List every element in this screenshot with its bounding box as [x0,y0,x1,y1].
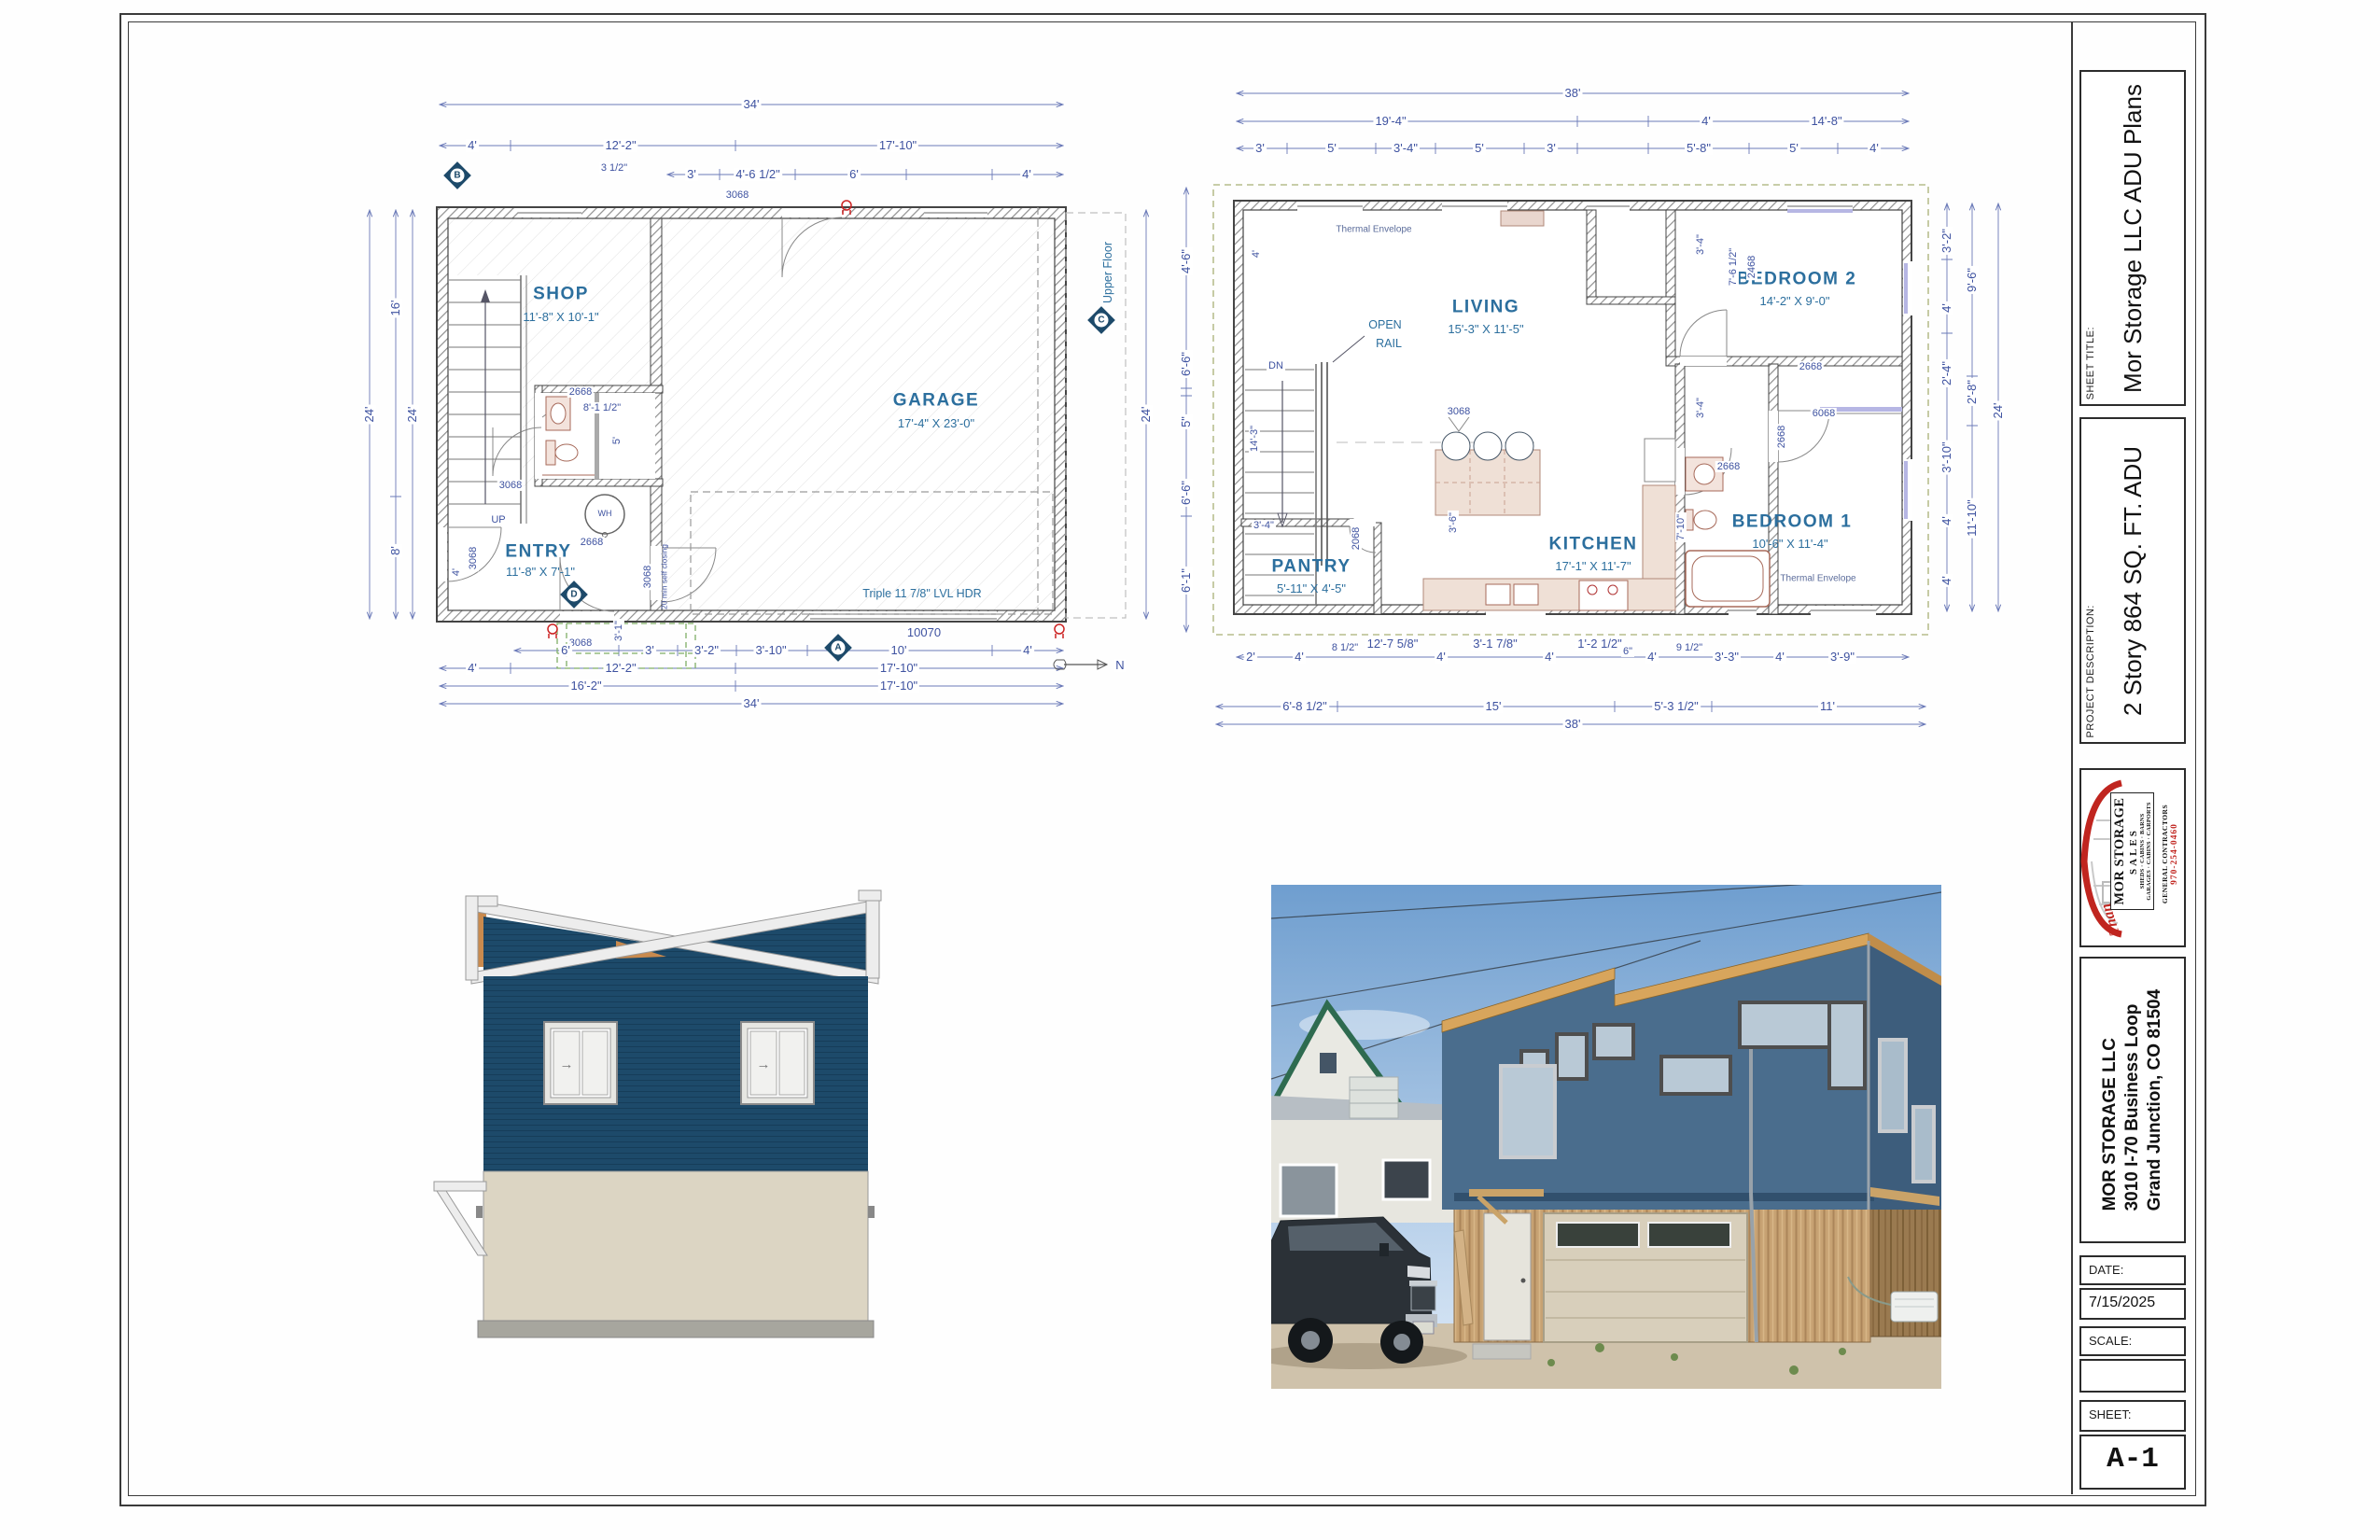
logo-tagline: GENERAL CONTRACTORS [2161,798,2169,910]
site-photo [1271,885,1941,1389]
mor-storage-logo: Than MOR STORAGE SALES SHEDS · CABINS · … [2082,774,2183,942]
scale-label: SCALE: [2081,1328,2184,1353]
plan-sheet: 34'4'12'-2"17'-10"3 1/2"3'4'-6 1/2"6'4'3… [0,0,2380,1540]
scale-label-box: SCALE: [2079,1326,2186,1356]
sheet-number: A-1 [2081,1436,2184,1476]
section-marker-letter: A [832,641,846,655]
elevation-lower-wall [483,1171,868,1321]
sheet-label: SHEET: [2081,1402,2184,1427]
title-block-divider [2071,21,2073,1494]
date-value-box: 7/15/2025 [2079,1288,2186,1320]
bath-closet-divider [595,393,599,479]
date-value: 7/15/2025 [2081,1290,2184,1316]
elevation-roof [466,890,881,984]
sheet-label-box: SHEET: [2079,1400,2186,1432]
project-description: 2 Story 864 SQ. FT. ADU [2119,446,2148,716]
logo-sales: SALES [2128,795,2139,907]
garage-front [1454,1189,1747,1359]
porch-outline [557,623,695,668]
company-address1: 3010 I-70 Business Loop [2121,989,2144,1211]
logo-products: SHEDS · CABINS · BARNS [2139,795,2146,907]
logo-sign: MOR STORAGE SALES SHEDS · CABINS · BARNS… [2110,792,2154,910]
section-marker-letter: B [451,169,465,183]
laundry-appliance [1501,211,1544,226]
sheet-title: Mor Storage LLC ADU Plans [2119,84,2148,393]
logo-box: Than MOR STORAGE SALES SHEDS · CABINS · … [2079,768,2186,947]
logo-phone: 970-254-0460 [2170,798,2179,910]
company-address2: Grand Junction, CO 81504 [2144,989,2166,1211]
company-address: MOR STORAGE LLC 3010 I-70 Business Loop … [2099,989,2165,1211]
second-floor-plan-drawing [1157,75,2016,747]
closet-rod [1820,407,1902,412]
north-arrow-icon [1054,660,1107,669]
logo-products: GARAGES · CABINS · CARPORTS [2146,795,2152,907]
sheet-number-box: A-1 [2079,1435,2186,1490]
first-floor-plan-drawing [355,75,1167,747]
elevation-foundation [478,1321,874,1337]
section-marker-letter: C [1095,314,1109,328]
date-label: DATE: [2081,1257,2184,1282]
scale-value [2081,1361,2184,1370]
logo-name: MOR STORAGE [2112,795,2128,907]
elevation-drawing [420,868,1036,1391]
project-description-box: PROJECT DESCRIPTION: 2 Story 864 SQ. FT.… [2079,417,2186,744]
sheet-title-box: SHEET TITLE: Mor Storage LLC ADU Plans [2079,70,2186,406]
scale-value-box [2079,1359,2186,1393]
date-label-box: DATE: [2079,1255,2186,1285]
company-name: MOR STORAGE LLC [2099,989,2121,1211]
water-heater [585,495,624,534]
exterior-walls [1234,201,1911,614]
section-marker-letter: D [567,588,581,602]
company-box: MOR STORAGE LLC 3010 I-70 Business Loop … [2079,957,2186,1243]
